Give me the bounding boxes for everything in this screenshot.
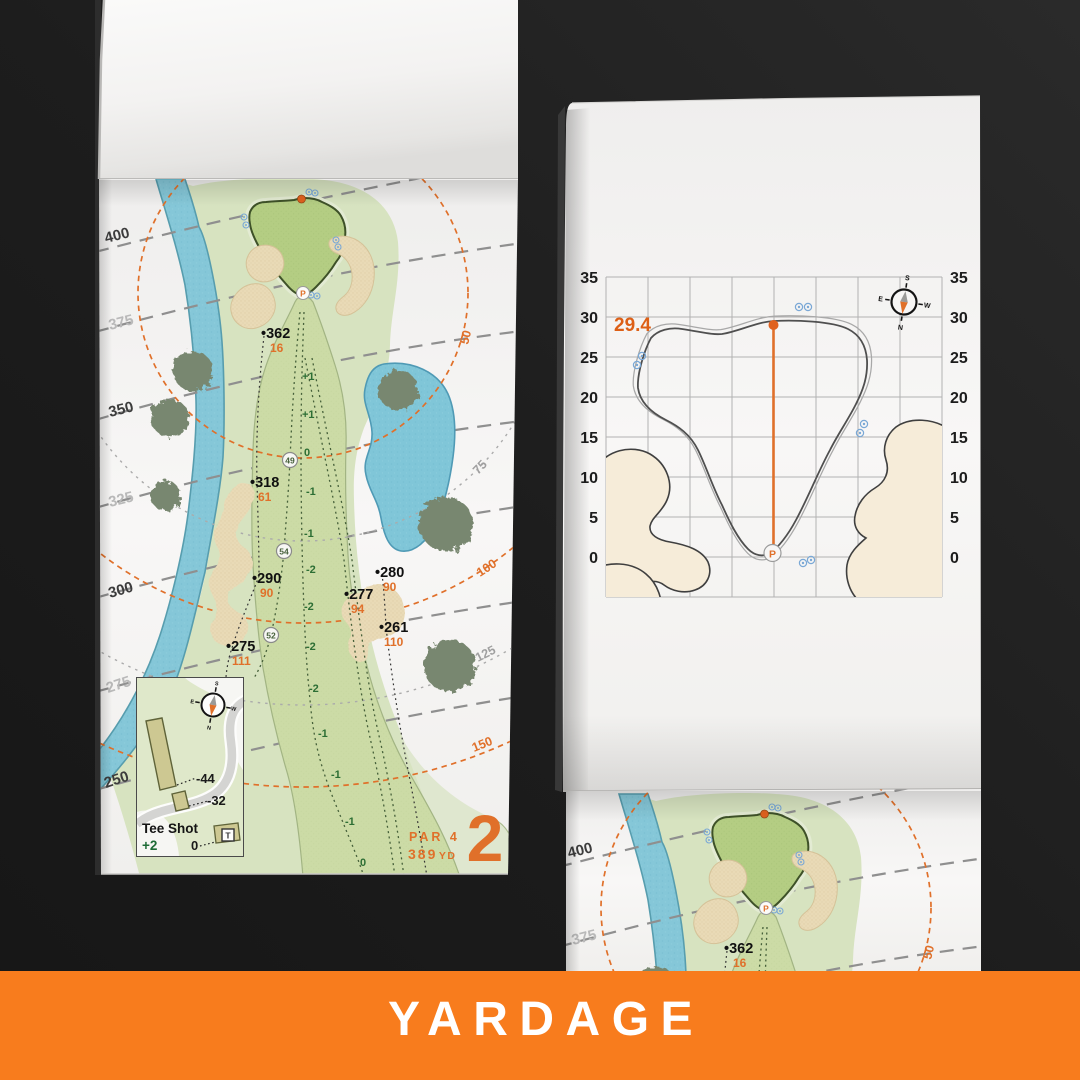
svg-text:0: 0: [950, 550, 959, 567]
svg-text:25: 25: [950, 350, 968, 367]
svg-text:20: 20: [950, 390, 968, 407]
svg-text:15: 15: [580, 430, 598, 447]
svg-text:29.4: 29.4: [614, 315, 651, 336]
svg-text:35: 35: [580, 270, 598, 287]
svg-text:5: 5: [589, 510, 598, 527]
svg-text:30: 30: [950, 310, 968, 327]
svg-text:10: 10: [580, 470, 598, 487]
svg-text:20: 20: [580, 390, 598, 407]
svg-text:YARDAGE: YARDAGE: [388, 993, 704, 1046]
svg-text:N: N: [897, 324, 903, 332]
svg-text:30: 30: [580, 310, 598, 327]
svg-text:10: 10: [950, 470, 968, 487]
svg-text:5: 5: [950, 510, 959, 527]
svg-text:25: 25: [580, 350, 598, 367]
svg-text:P: P: [769, 549, 776, 561]
svg-text:0: 0: [589, 550, 598, 567]
svg-text:35: 35: [950, 270, 968, 287]
svg-text:15: 15: [950, 430, 968, 447]
